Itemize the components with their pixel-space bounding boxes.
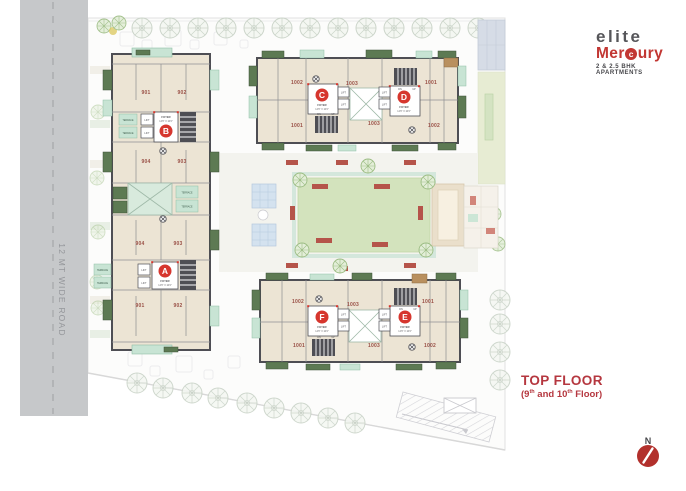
logo-mercury-pre: Mer	[596, 45, 625, 62]
building-block-fe: LIFT LIFT F FOYER 14'6" X 10'0" DN UP LI…	[252, 273, 468, 370]
foyer-dims: 14'6" X 10'0"	[159, 120, 173, 123]
foyer-dims: 14'6" X 10'0"	[315, 330, 329, 333]
floor-title-main: TOP FLOOR	[521, 373, 603, 388]
terrace-label: TERRACE	[182, 206, 193, 209]
terrace-label: TERRACE	[97, 282, 108, 285]
unit-label: 1001	[425, 80, 437, 86]
lift-label: LIFT	[382, 314, 388, 317]
north-label: N	[645, 436, 652, 446]
unit-label: 904	[142, 159, 151, 165]
central-courtyard	[219, 153, 498, 273]
unit-label: 901	[142, 90, 151, 96]
floor-title: TOP FLOOR (9th and 10th Floor)	[521, 373, 603, 400]
lift-label: LIFT	[382, 104, 388, 107]
floor-title-sub: (9th and 10th Floor)	[521, 389, 603, 400]
core-letter-d: D	[401, 92, 407, 102]
road-12mt: 12 MT WIDE ROAD	[20, 0, 88, 416]
unit-label: 1002	[291, 80, 303, 86]
logo-tagline: 2 & 2.5 BHK APARTMENTS	[596, 64, 676, 76]
logo-mercury-text: Mercury	[596, 45, 676, 62]
foyer-dims: 14'6" X 10'0"	[397, 110, 411, 113]
unit-label: 1001	[422, 299, 434, 305]
floor-sub-part: and 10	[535, 389, 568, 400]
lift-label: LIFT	[144, 119, 150, 122]
core-letter-b: B	[163, 126, 169, 136]
foyer-label: FOYER	[317, 103, 326, 107]
core-letter-a: A	[162, 266, 168, 276]
terrace-label: TERRACE	[123, 119, 134, 122]
logo-elite-text: elite	[596, 28, 676, 45]
up-label: UP	[331, 113, 335, 116]
foyer-label: FOYER	[160, 279, 169, 283]
unit-label: 1002	[428, 123, 440, 129]
foyer-dims: 14'6" X 10'0"	[315, 108, 329, 111]
right-strip	[478, 20, 505, 184]
dn-label: DN	[399, 308, 403, 311]
unit-label: 902	[178, 90, 187, 96]
dn-label: DN	[317, 336, 321, 339]
road-label: 12 MT WIDE ROAD	[57, 243, 67, 336]
building-block-ab: TERRACE TERRACE TERRACE TERRACE LIFT LIF…	[94, 48, 219, 354]
unit-label: 901	[136, 303, 145, 309]
up-label: UP	[331, 336, 335, 339]
unit-label: 1003	[368, 343, 380, 349]
unit-label: 1002	[424, 343, 436, 349]
dn-label: DN	[398, 88, 402, 91]
lift-label: LIFT	[341, 314, 347, 317]
dn-label: DN	[317, 113, 321, 116]
unit-label: 903	[178, 159, 187, 165]
unit-label: 1003	[368, 121, 380, 127]
terrace-label: TERRACE	[182, 192, 193, 195]
unit-label: 902	[174, 303, 183, 309]
unit-label: 1001	[291, 123, 303, 129]
north-arrow: N	[637, 436, 659, 467]
logo-mercury-post: ury	[638, 45, 663, 62]
unit-label: 1002	[292, 299, 304, 305]
terrace-label: TERRACE	[97, 269, 108, 272]
foyer-label: FOYER	[161, 115, 170, 119]
amenity-pavilion	[464, 186, 498, 248]
unit-label: 1003	[347, 302, 359, 308]
foyer-dims: 14'6" X 10'0"	[158, 284, 172, 287]
lift-label: LIFT	[144, 132, 150, 135]
lift-label: LIFT	[382, 92, 388, 95]
floor-plan-svg: 12 MT WIDE ROAD	[0, 0, 686, 491]
lift-label: LIFT	[341, 92, 347, 95]
core-letter-e: E	[402, 312, 408, 322]
lift-label: LIFT	[382, 326, 388, 329]
lift-label: LIFT	[341, 326, 347, 329]
logo-mercury-c-icon: c	[625, 48, 637, 60]
unit-label: 903	[174, 241, 183, 247]
foyer-label: FOYER	[317, 325, 326, 329]
building-block-cd: LIFT LIFT C FOYER 14'6" X 10'0" DN UP LI…	[249, 50, 466, 151]
foyer-dims: 14'6" X 10'0"	[398, 330, 412, 333]
site-plan-canvas: 12 MT WIDE ROAD	[0, 0, 686, 491]
pool-area	[432, 184, 464, 246]
lift-label: LIFT	[341, 104, 347, 107]
brand-logo: elite Mercury 2 & 2.5 BHK APARTMENTS	[596, 28, 676, 76]
core-a: TERRACE TERRACE LIFT LIFT A FOYER 14'6" …	[94, 260, 196, 290]
up-label: UP	[413, 308, 417, 311]
up-label: UP	[412, 88, 416, 91]
unit-label: 1003	[346, 81, 358, 87]
unit-label: 904	[136, 241, 145, 247]
foyer-label: FOYER	[399, 105, 408, 109]
lift-label: LIFT	[141, 282, 147, 285]
core-letter-c: C	[319, 90, 325, 100]
floor-sub-part: Floor)	[573, 389, 603, 400]
lift-label: LIFT	[141, 269, 147, 272]
unit-label: 1001	[293, 343, 305, 349]
foyer-label: FOYER	[400, 325, 409, 329]
core-letter-f: F	[319, 312, 324, 322]
terrace-label: TERRACE	[123, 132, 134, 135]
